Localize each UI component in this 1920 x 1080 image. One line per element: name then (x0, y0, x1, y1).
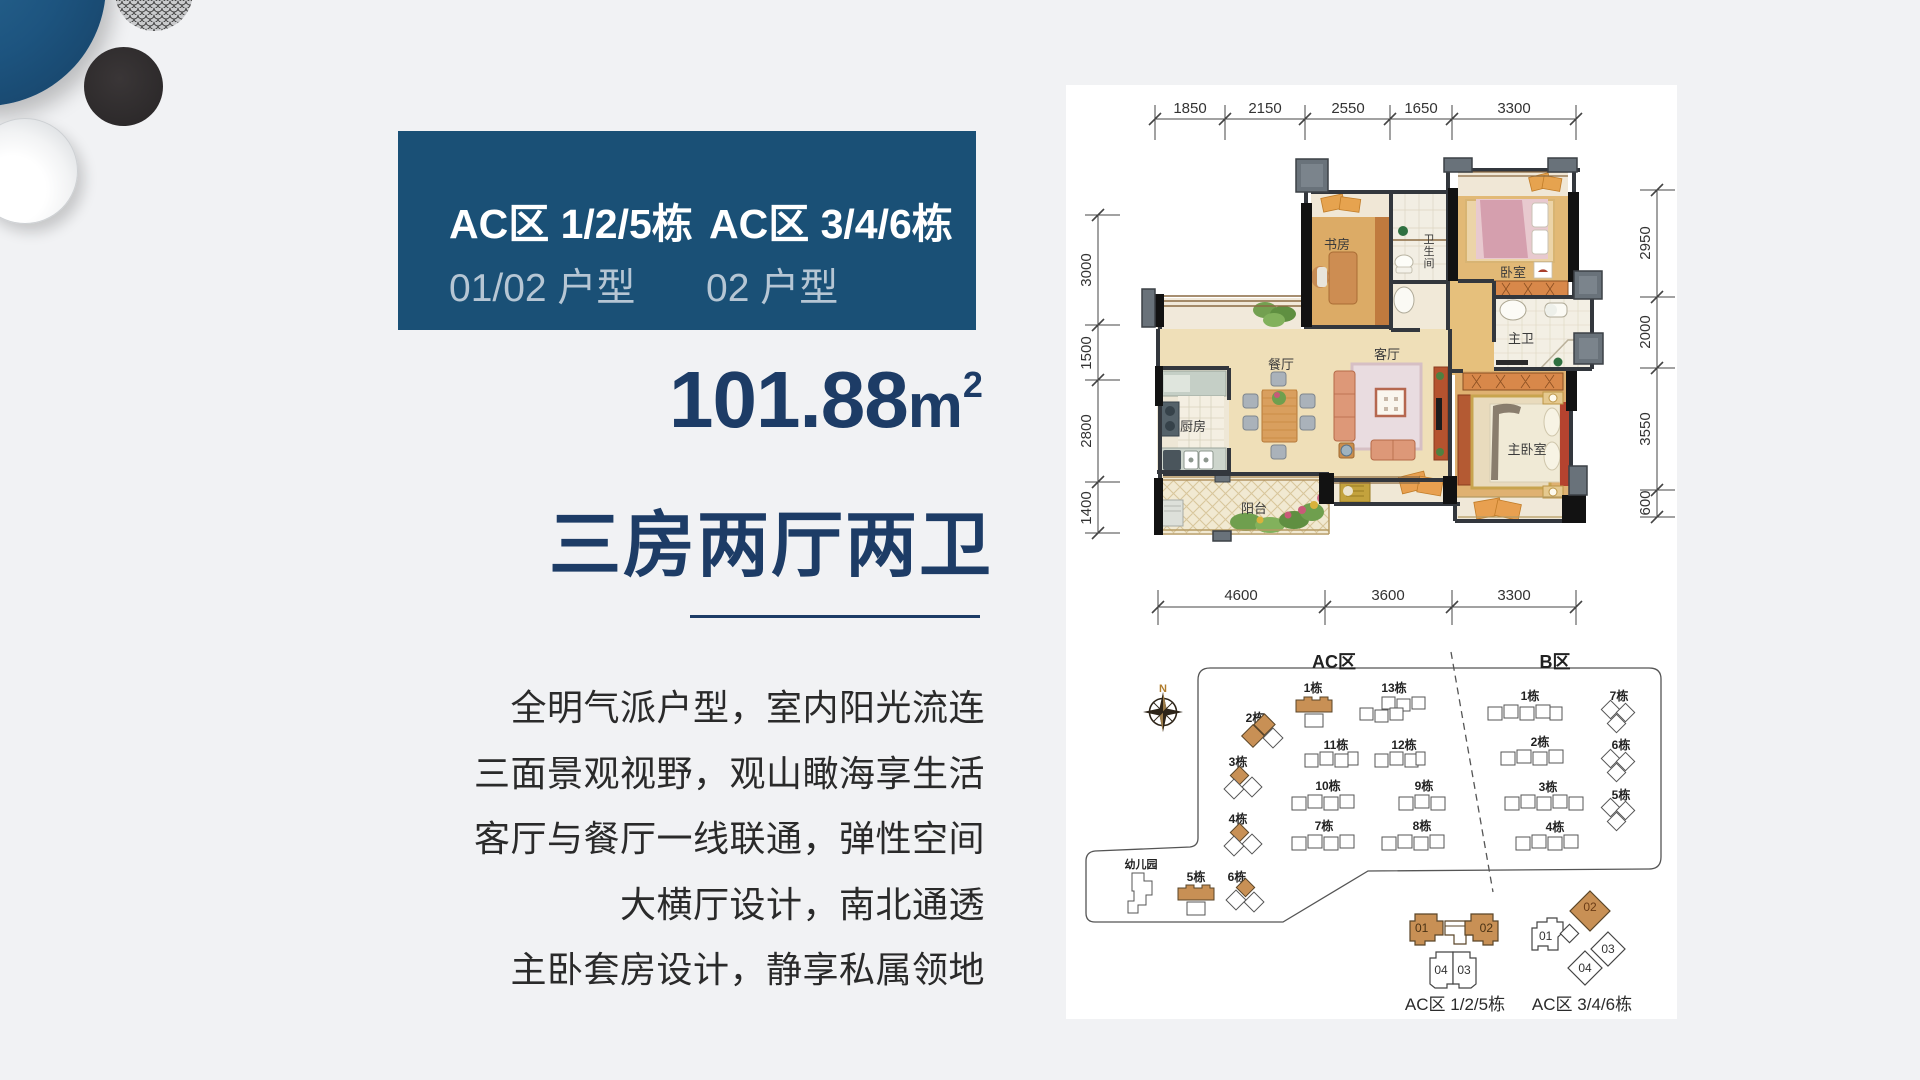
svg-text:6栋: 6栋 (1612, 737, 1631, 752)
svg-text:03: 03 (1601, 942, 1615, 956)
svg-text:主卫: 主卫 (1508, 331, 1534, 346)
svg-text:B区: B区 (1540, 652, 1571, 672)
svg-text:8栋: 8栋 (1413, 818, 1432, 833)
svg-text:1400: 1400 (1078, 491, 1095, 524)
svg-text:幼儿园: 幼儿园 (1125, 857, 1158, 871)
svg-text:餐厅: 餐厅 (1268, 357, 1294, 372)
svg-text:9栋: 9栋 (1415, 778, 1434, 793)
svg-text:10栋: 10栋 (1315, 778, 1340, 793)
svg-text:3300: 3300 (1497, 100, 1530, 117)
svg-text:5栋: 5栋 (1187, 869, 1206, 884)
svg-text:2000: 2000 (1637, 315, 1654, 348)
svg-text:4栋: 4栋 (1229, 811, 1248, 826)
svg-text:AC区: AC区 (1312, 652, 1356, 672)
svg-text:01: 01 (1415, 921, 1429, 935)
svg-text:7栋: 7栋 (1315, 818, 1334, 833)
svg-text:生: 生 (1424, 244, 1435, 258)
svg-text:04: 04 (1434, 963, 1448, 977)
svg-text:1500: 1500 (1078, 336, 1095, 369)
svg-text:主卧室: 主卧室 (1507, 442, 1546, 457)
svg-text:2150: 2150 (1248, 100, 1281, 117)
svg-text:2800: 2800 (1078, 414, 1095, 447)
svg-text:3000: 3000 (1078, 253, 1095, 286)
svg-text:12栋: 12栋 (1391, 737, 1416, 752)
svg-text:厨房: 厨房 (1180, 419, 1206, 434)
svg-text:2550: 2550 (1331, 100, 1364, 117)
svg-text:3栋: 3栋 (1229, 754, 1248, 769)
svg-text:02: 02 (1480, 921, 1494, 935)
svg-text:3栋: 3栋 (1539, 779, 1558, 794)
svg-text:1栋: 1栋 (1304, 680, 1323, 695)
svg-text:客厅: 客厅 (1374, 347, 1400, 362)
svg-text:卧室: 卧室 (1500, 265, 1526, 280)
svg-text:书房: 书房 (1324, 237, 1350, 252)
svg-text:1栋: 1栋 (1521, 688, 1540, 703)
svg-text:04: 04 (1578, 961, 1592, 975)
svg-text:01: 01 (1539, 929, 1553, 943)
svg-text:卫: 卫 (1424, 234, 1435, 246)
svg-text:3550: 3550 (1637, 412, 1654, 445)
svg-text:AC区 3/4/6栋: AC区 3/4/6栋 (1532, 995, 1632, 1014)
svg-text:5栋: 5栋 (1612, 787, 1631, 802)
svg-text:阳台: 阳台 (1241, 501, 1267, 516)
svg-text:1850: 1850 (1173, 100, 1206, 117)
svg-text:11栋: 11栋 (1324, 737, 1349, 752)
svg-text:600: 600 (1637, 490, 1654, 515)
svg-text:4600: 4600 (1224, 587, 1257, 604)
svg-text:间: 间 (1424, 257, 1435, 270)
svg-text:1650: 1650 (1404, 100, 1437, 117)
svg-text:AC区 1/2/5栋: AC区 1/2/5栋 (1405, 995, 1505, 1014)
svg-text:3600: 3600 (1371, 587, 1404, 604)
svg-text:7栋: 7栋 (1610, 688, 1629, 703)
svg-text:2栋: 2栋 (1531, 734, 1550, 749)
svg-text:02: 02 (1583, 900, 1597, 914)
svg-text:13栋: 13栋 (1381, 680, 1406, 695)
svg-text:3300: 3300 (1497, 587, 1530, 604)
svg-text:03: 03 (1457, 963, 1471, 977)
svg-text:4栋: 4栋 (1546, 819, 1565, 834)
svg-text:2950: 2950 (1637, 226, 1654, 259)
